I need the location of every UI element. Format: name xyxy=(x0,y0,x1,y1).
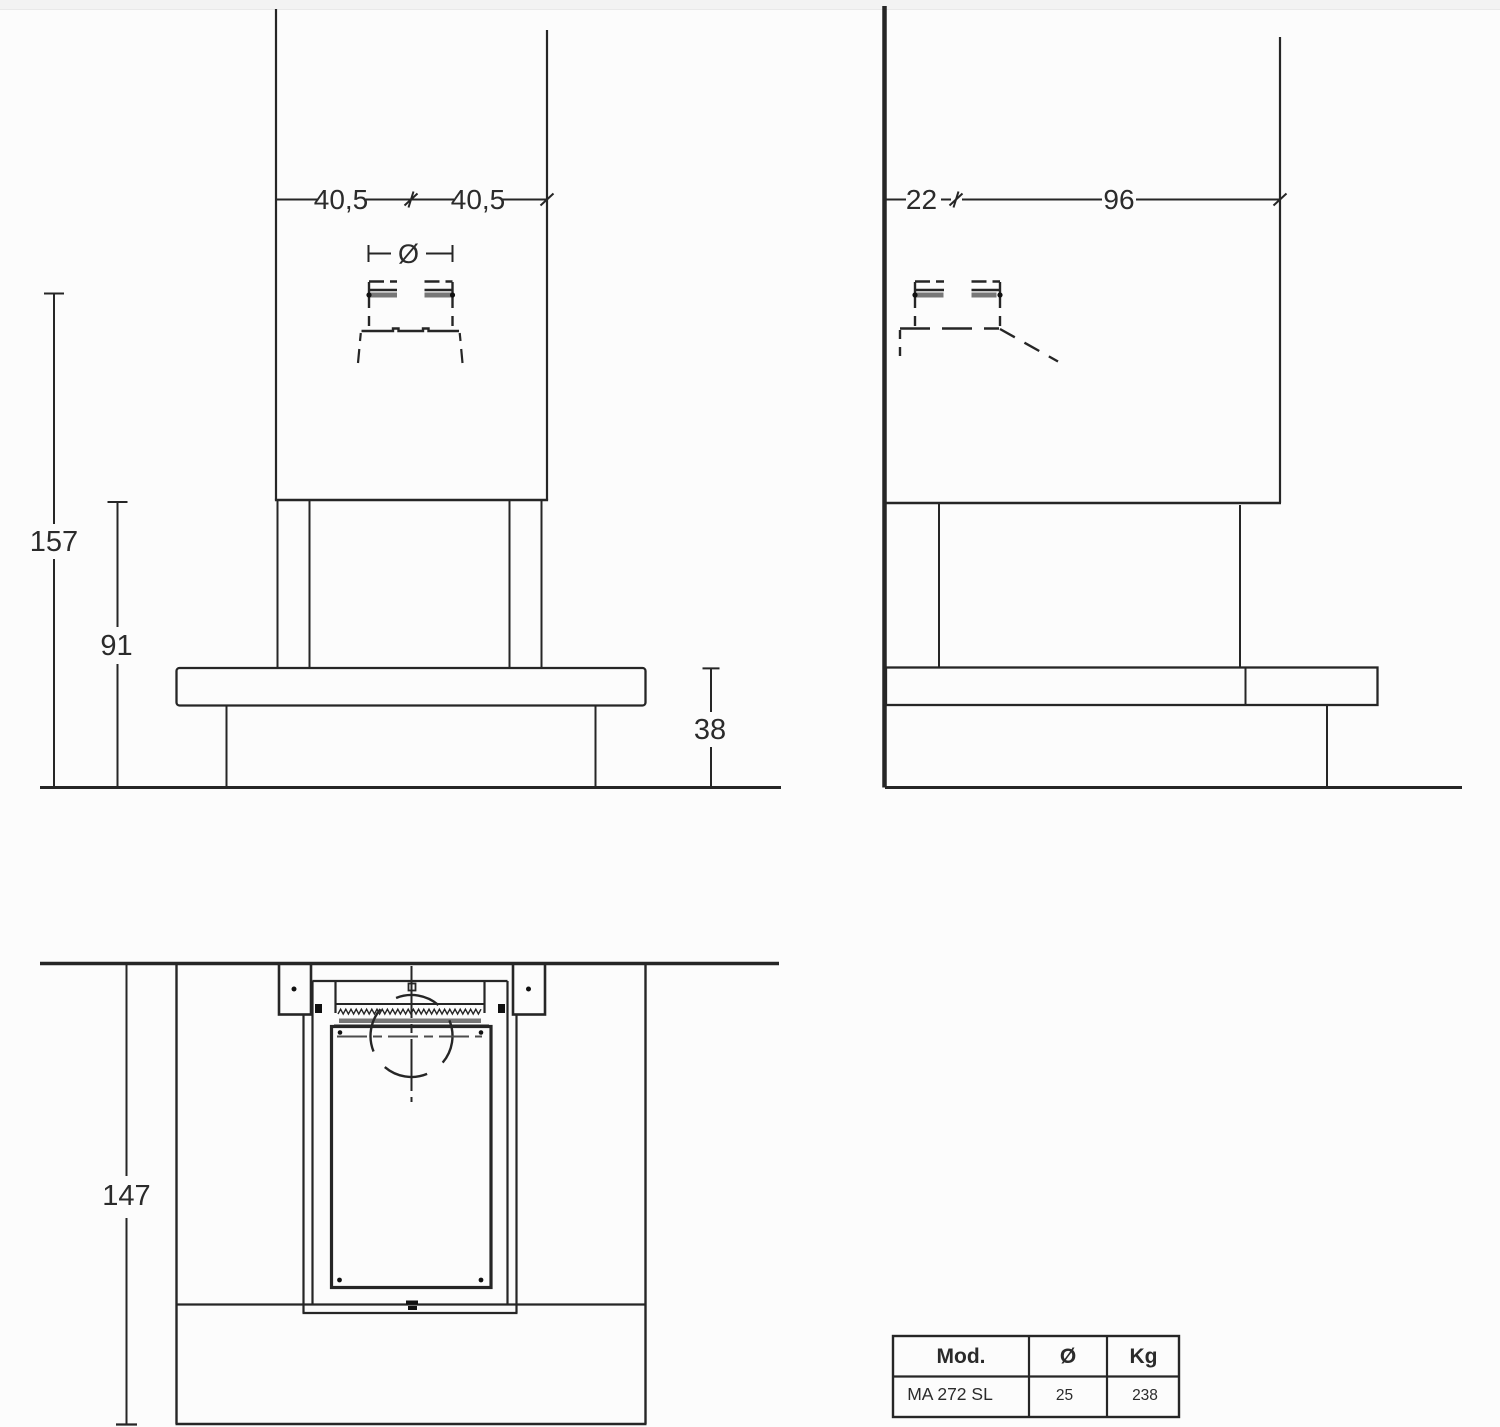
svg-text:147: 147 xyxy=(102,1180,150,1212)
svg-text:22: 22 xyxy=(906,184,937,215)
svg-text:91: 91 xyxy=(100,630,132,662)
svg-text:MA 272 SL: MA 272 SL xyxy=(907,1384,993,1404)
svg-text:157: 157 xyxy=(30,526,78,558)
svg-text:25: 25 xyxy=(1056,1387,1073,1404)
svg-text:Kg: Kg xyxy=(1130,1345,1158,1368)
svg-text:96: 96 xyxy=(1103,184,1134,215)
svg-text:Mod.: Mod. xyxy=(937,1345,986,1368)
svg-text:40,5: 40,5 xyxy=(314,184,369,215)
svg-text:238: 238 xyxy=(1132,1387,1158,1404)
svg-text:40,5: 40,5 xyxy=(451,184,506,215)
svg-text:Ø: Ø xyxy=(398,239,419,269)
svg-text:38: 38 xyxy=(694,714,726,746)
svg-text:Ø: Ø xyxy=(1060,1345,1076,1368)
